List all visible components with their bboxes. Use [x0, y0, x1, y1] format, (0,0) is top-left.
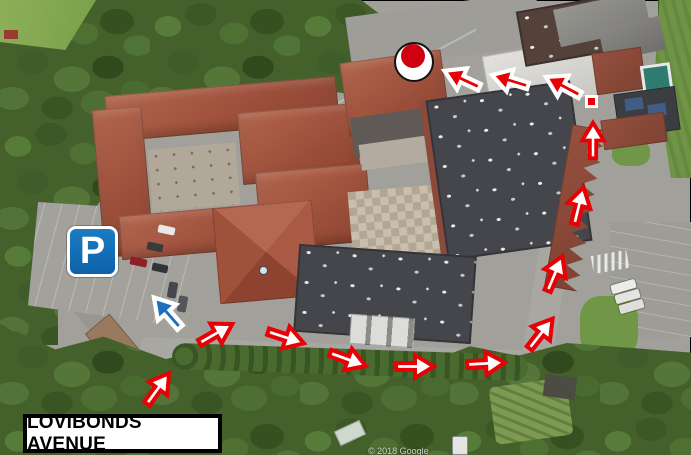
- destination-dot: [401, 44, 425, 68]
- route-arrow-red: [482, 56, 538, 104]
- destination-marker: [394, 42, 434, 82]
- route-arrow-white: [186, 306, 245, 360]
- route-arrow-white: [530, 244, 581, 302]
- map-watermark: © 2018 Google: [368, 446, 429, 455]
- street-label: LOVIBONDS AVENUE: [23, 414, 222, 453]
- route-arrow-white: [512, 303, 569, 362]
- route-arrow-red: [432, 52, 493, 106]
- route-arrow-white: [130, 358, 187, 417]
- route-arrow-white: [391, 349, 439, 384]
- aerial-route-map: P LOVIBONDS AVENUE © 2018 Google: [0, 0, 691, 455]
- parking-letter: P: [80, 230, 105, 273]
- route-arrow-white: [319, 334, 376, 383]
- route-arrow-white: [556, 177, 602, 232]
- route-arrow-white: [577, 117, 610, 163]
- route-arrow-white: [461, 344, 511, 381]
- street-label-text: LOVIBONDS AVENUE: [27, 412, 218, 455]
- route-arrow-white: [258, 313, 314, 361]
- route-start-marker: [585, 95, 598, 108]
- parking-icon: P: [67, 226, 118, 277]
